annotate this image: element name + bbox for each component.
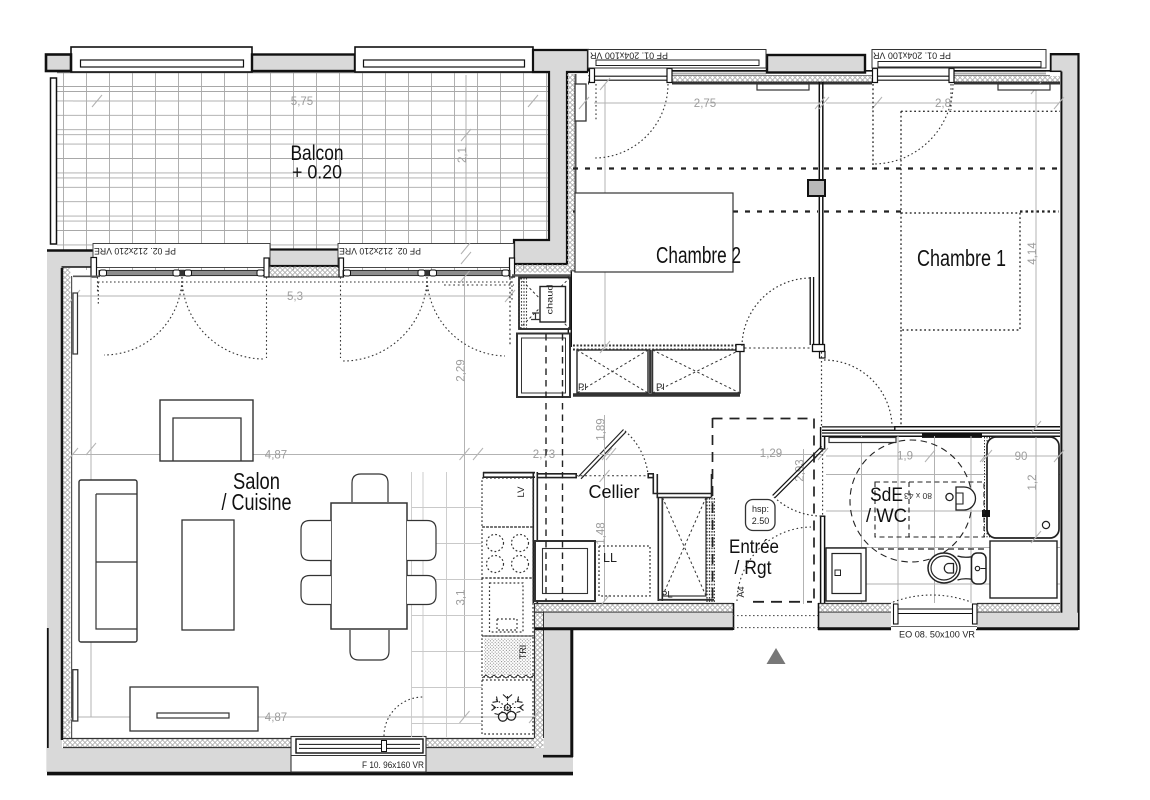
- svg-text:LV: LV: [516, 486, 527, 498]
- svg-text:Chambre 1: Chambre 1: [917, 245, 1006, 271]
- svg-text:4,87: 4,87: [265, 712, 287, 724]
- svg-text:hsp:: hsp:: [752, 504, 769, 514]
- svg-text:EO 08. 50x100 VR: EO 08. 50x100 VR: [899, 630, 976, 640]
- svg-text:90: 90: [1015, 451, 1028, 463]
- svg-text:PF 02. 212x210 VRE: PF 02. 212x210 VRE: [339, 245, 421, 256]
- svg-text:1,89: 1,89: [596, 418, 608, 440]
- svg-text:1,9: 1,9: [897, 451, 913, 463]
- svg-text:2,75: 2,75: [694, 98, 716, 110]
- svg-text:Cellier: Cellier: [589, 482, 640, 502]
- svg-text:A4: A4: [736, 586, 746, 597]
- svg-text:Entrée: Entrée: [729, 537, 779, 558]
- svg-text:LL: LL: [603, 551, 617, 565]
- svg-text:+ 0.20: + 0.20: [292, 163, 342, 184]
- svg-text:/ Rgt: / Rgt: [735, 558, 773, 579]
- svg-text:PF 01. 204x100 VR: PF 01. 204x100 VR: [590, 50, 668, 61]
- svg-text:1,48: 1,48: [596, 522, 608, 544]
- svg-text:2,73: 2,73: [533, 449, 555, 461]
- svg-text:PF 01. 204x100 VR: PF 01. 204x100 VR: [873, 50, 951, 61]
- svg-text:2,29: 2,29: [456, 359, 468, 381]
- svg-text:3,1: 3,1: [456, 590, 468, 606]
- svg-text:PF 02. 212x210 VRE: PF 02. 212x210 VRE: [94, 245, 176, 256]
- svg-text:PL: PL: [661, 590, 673, 601]
- svg-text:Pl: Pl: [656, 382, 664, 393]
- svg-text:/ Cuisine: / Cuisine: [222, 489, 292, 515]
- svg-text:2,8: 2,8: [935, 98, 951, 110]
- svg-text:4,14: 4,14: [1027, 242, 1039, 265]
- svg-text:1,2: 1,2: [1027, 475, 1039, 491]
- svg-text:5,3: 5,3: [287, 291, 303, 303]
- svg-text:5,75: 5,75: [291, 96, 313, 108]
- svg-text:TRI: TRI: [518, 645, 528, 660]
- svg-text:chaud: chaud: [545, 284, 555, 314]
- svg-text:F 10. 96x160 VR: F 10. 96x160 VR: [362, 760, 424, 770]
- svg-text:/ WC: / WC: [866, 506, 907, 527]
- svg-text:4,87: 4,87: [265, 450, 287, 462]
- svg-text:1,29: 1,29: [760, 448, 782, 460]
- svg-text:80 x 43: 80 x 43: [904, 491, 932, 501]
- svg-text:Pl: Pl: [578, 382, 586, 393]
- svg-text:2.50: 2.50: [752, 516, 770, 526]
- svg-text:Chambre 2: Chambre 2: [656, 242, 741, 268]
- svg-text:SdE: SdE: [870, 485, 903, 506]
- svg-text:2,1: 2,1: [457, 147, 469, 163]
